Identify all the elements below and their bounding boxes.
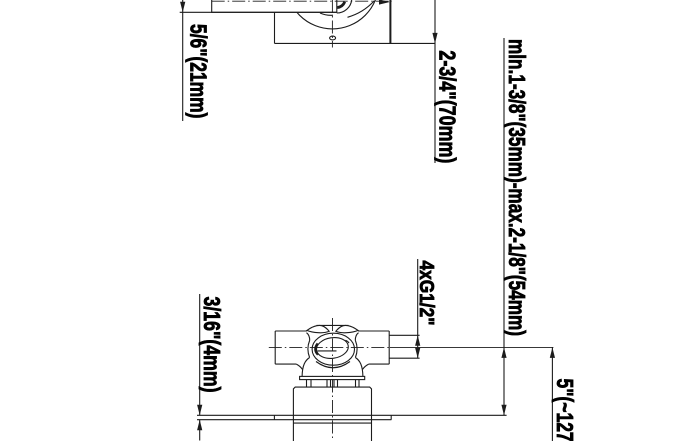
svg-text:2-3/4"(70mm): 2-3/4"(70mm)	[434, 50, 460, 163]
svg-text:4xG1/2": 4xG1/2"	[415, 261, 437, 326]
svg-text:mln.1-3/8"(35mm)-max.2-1/8"(54: mln.1-3/8"(35mm)-max.2-1/8"(54mm)	[504, 39, 530, 336]
svg-text:5"(~127mm): 5"(~127mm)	[552, 379, 578, 441]
svg-text:3/16"(4mm): 3/16"(4mm)	[199, 297, 225, 393]
svg-text:5/6"(21mm): 5/6"(21mm)	[186, 24, 212, 119]
